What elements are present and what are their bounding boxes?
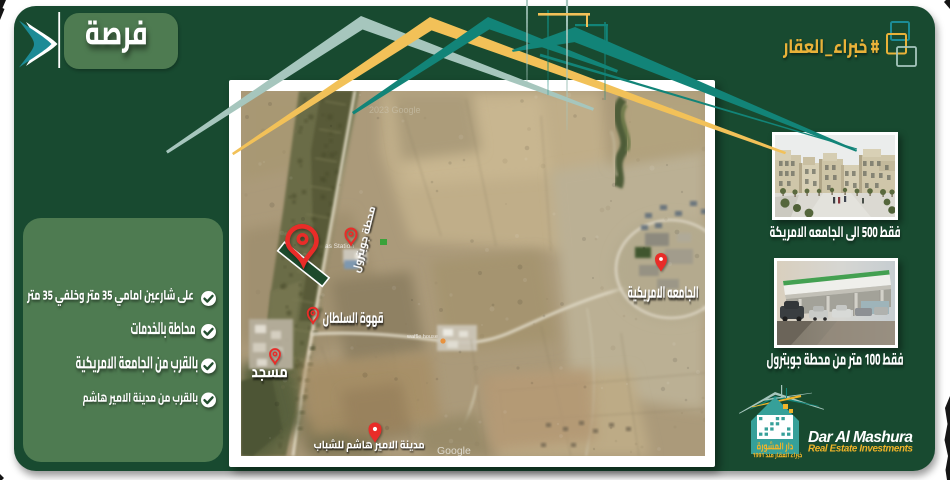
- svg-text:waffle house: waffle house: [406, 334, 438, 340]
- svg-text:Google: Google: [437, 445, 471, 456]
- svg-text:as Station: as Station: [325, 243, 354, 250]
- svg-text:2023 Google: 2023 Google: [369, 105, 421, 115]
